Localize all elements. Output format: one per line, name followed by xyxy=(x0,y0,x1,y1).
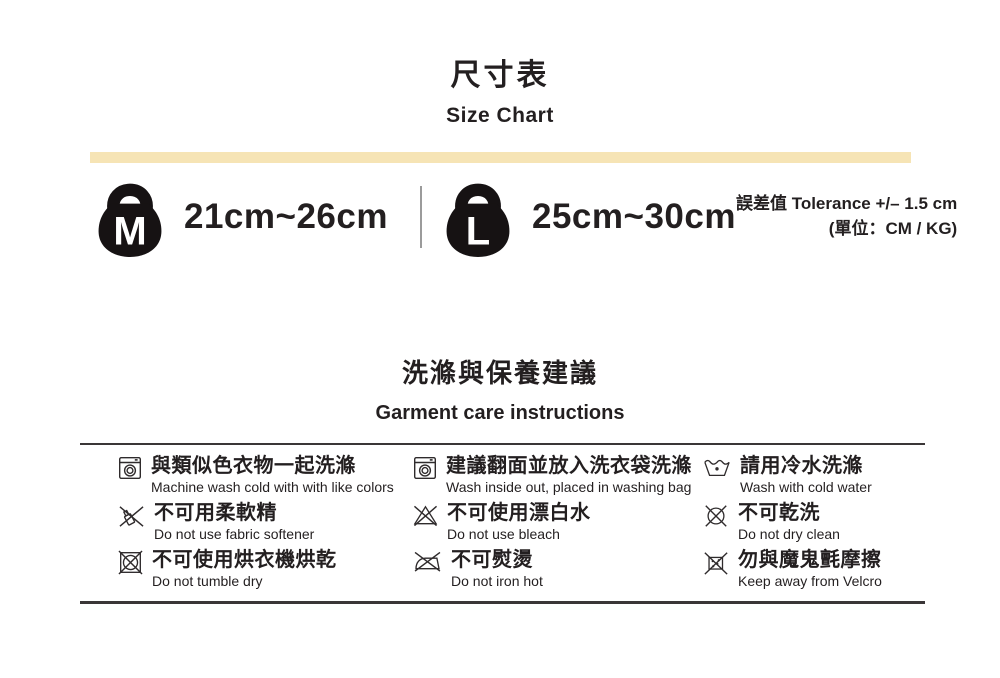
care-table: 與類似色衣物一起洗滌 Machine wash cold with with l… xyxy=(80,443,925,604)
kettlebell-size-label: L xyxy=(466,210,490,254)
washing-machine-icon xyxy=(413,456,437,480)
size-item-m: M 21cm~26cm xyxy=(88,177,388,257)
care-title: 洗滌與保養建議 xyxy=(0,353,1000,390)
kettlebell-icon: M xyxy=(88,177,172,257)
care-item: 不可使用烘衣機烘乾 Do not tumble dry xyxy=(80,549,400,589)
no-fabric-softener-icon xyxy=(118,503,145,530)
care-subtitle: Garment care instructions xyxy=(0,402,1000,425)
tolerance-line2: (單位：CM / KG) xyxy=(736,218,957,241)
no-velcro-icon xyxy=(703,550,729,576)
kettlebell-icon: L xyxy=(436,177,520,257)
care-zh: 不可乾洗 xyxy=(738,502,840,525)
size-section: M 21cm~26cm L 25cm~30cm 誤差值 Tolerance +/… xyxy=(88,176,915,258)
care-en: Wash with cold water xyxy=(740,479,872,495)
care-item: 建議翻面並放入洗衣袋洗滌 Wash inside out, placed in … xyxy=(400,455,700,495)
kettlebell-size-label: M xyxy=(113,210,146,254)
care-zh: 不可熨燙 xyxy=(451,549,543,572)
care-item: 請用冷水洗滌 Wash with cold water xyxy=(700,455,925,495)
size-item-l: L 25cm~30cm xyxy=(436,177,736,257)
care-item: 不可使用漂白水 Do not use bleach xyxy=(400,502,700,542)
care-item: 不可乾洗 Do not dry clean xyxy=(700,502,925,542)
no-dry-clean-icon xyxy=(703,503,729,529)
size-range-l: 25cm~30cm xyxy=(532,197,736,237)
care-zh: 與類似色衣物一起洗滌 xyxy=(151,455,394,478)
care-zh: 勿與魔鬼氈摩擦 xyxy=(738,549,882,572)
care-zh: 不可使用烘衣機烘乾 xyxy=(152,549,337,572)
care-item: 勿與魔鬼氈摩擦 Keep away from Velcro xyxy=(700,549,925,589)
care-item: 不可熨燙 Do not iron hot xyxy=(400,549,700,589)
page-header: 尺寸表 Size Chart xyxy=(0,0,1000,128)
no-iron-icon xyxy=(413,550,442,573)
wash-basin-icon xyxy=(703,456,731,478)
divider xyxy=(420,186,422,248)
size-range-m: 21cm~26cm xyxy=(184,197,388,237)
care-en: Do not dry clean xyxy=(738,526,840,542)
care-zh: 不可用柔軟精 xyxy=(154,502,314,525)
page-subtitle: Size Chart xyxy=(0,104,1000,128)
care-zh: 不可使用漂白水 xyxy=(447,502,591,525)
care-en: Machine wash cold with with like colors xyxy=(151,479,394,495)
washing-machine-icon xyxy=(118,456,142,480)
care-en: Do not use fabric softener xyxy=(154,526,314,542)
no-bleach-icon xyxy=(413,503,438,527)
care-en: Do not iron hot xyxy=(451,573,543,589)
size-chart-page: 尺寸表 Size Chart M 21cm~26cm L 25cm~30cm 誤… xyxy=(0,0,1000,678)
page-title: 尺寸表 xyxy=(0,50,1000,94)
care-item: 與類似色衣物一起洗滌 Machine wash cold with with l… xyxy=(80,455,400,495)
care-zh: 建議翻面並放入洗衣袋洗滌 xyxy=(446,455,692,478)
tolerance-line1: 誤差值 Tolerance +/– 1.5 cm xyxy=(736,193,957,216)
care-item: 不可用柔軟精 Do not use fabric softener xyxy=(80,502,400,542)
care-en: Wash inside out, placed in washing bag xyxy=(446,479,692,495)
care-zh: 請用冷水洗滌 xyxy=(740,455,872,478)
care-en: Do not use bleach xyxy=(447,526,591,542)
no-tumble-dry-icon xyxy=(118,550,143,575)
care-en: Do not tumble dry xyxy=(152,573,337,589)
accent-bar xyxy=(90,152,911,163)
care-en: Keep away from Velcro xyxy=(738,573,882,589)
tolerance-note: 誤差值 Tolerance +/– 1.5 cm (單位：CM / KG) xyxy=(736,193,957,241)
